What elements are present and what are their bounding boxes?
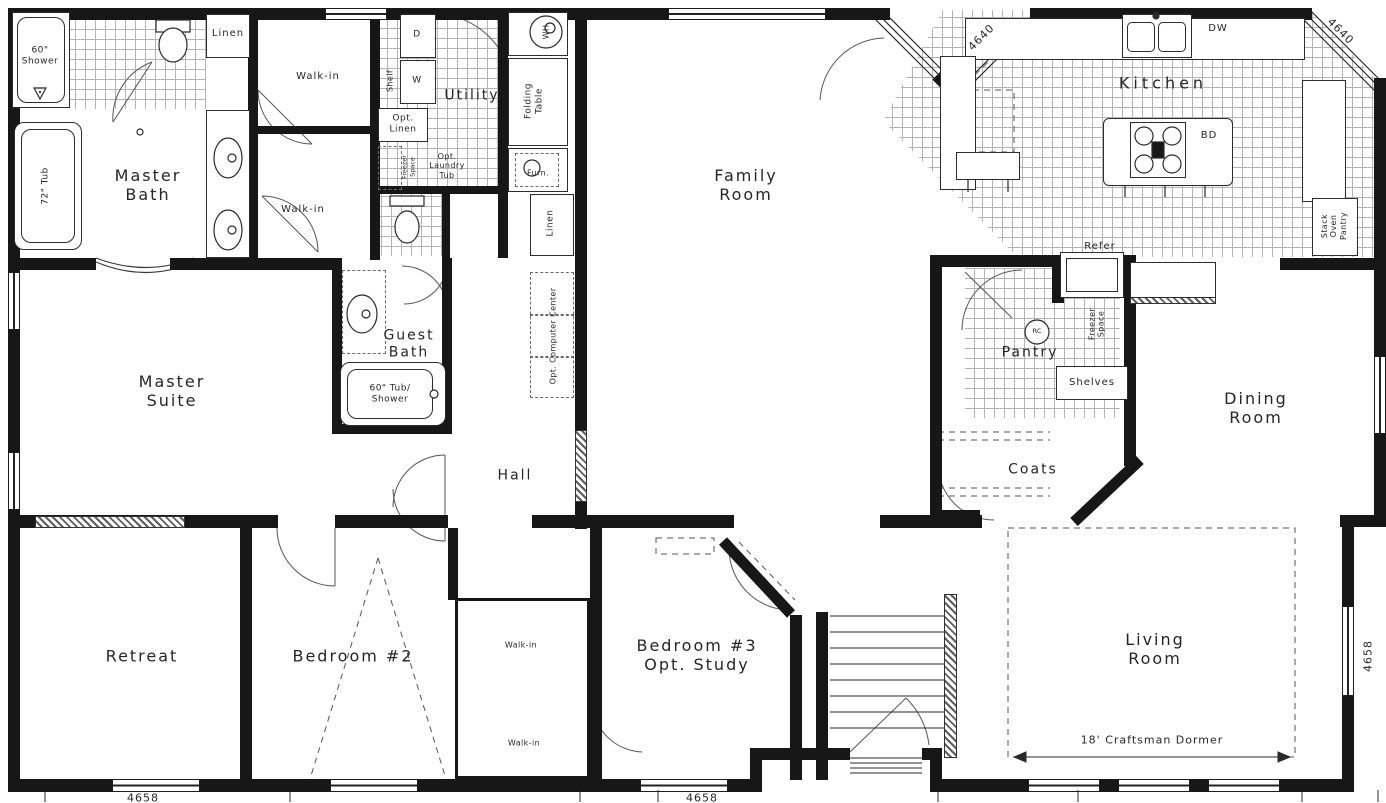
fixture-label-pantry-rc: RC bbox=[1033, 328, 1042, 336]
closet-label-freezer-space-pantry: Freezer Space bbox=[1088, 308, 1107, 340]
dimension-4658-right: 4658 bbox=[1363, 640, 1376, 672]
fixture-label-refrigerator: Refer bbox=[1084, 241, 1115, 253]
dimension-4658-bottom-left: 4658 bbox=[127, 793, 159, 803]
closet-label-opt-computer-center: Opt. Computer Center bbox=[548, 288, 557, 385]
closet-label-freezer-space-utility: Freezer Space bbox=[401, 155, 416, 179]
closet-label-linen-top: Linen bbox=[212, 28, 244, 40]
room-label-utility: Utility bbox=[444, 88, 499, 105]
room-label-coats: Coats bbox=[1008, 462, 1058, 479]
dimension-4658-bottom-center: 4658 bbox=[686, 793, 718, 803]
closet-label-stack-oven-pantry: Stack Oven Pantry bbox=[1320, 212, 1348, 240]
fixture-label-opt-laundry-tub: Opt. Laundry Tub bbox=[429, 152, 464, 180]
fixture-label-tub-72: 72" Tub bbox=[41, 167, 52, 205]
room-label-master-suite: Master Suite bbox=[139, 373, 206, 411]
room-label-bedroom-3: Bedroom #3 Opt. Study bbox=[636, 637, 757, 675]
fixture-label-washer: W bbox=[412, 76, 421, 87]
fixture-label-water-heater: WH bbox=[541, 25, 550, 40]
fixture-label-furnace: Furn. bbox=[527, 168, 549, 177]
closet-label-walkin-bed3-1: Walk-in bbox=[505, 640, 537, 649]
fixture-label-dryer: D bbox=[413, 30, 420, 41]
closet-label-shelf: Shelf bbox=[385, 70, 394, 92]
room-label-guest-bath: Guest Bath bbox=[383, 327, 434, 360]
closet-label-folding-table: Folding Table bbox=[523, 83, 544, 119]
room-label-kitchen: Kitchen bbox=[1119, 75, 1207, 94]
room-label-dining-room: Dining Room bbox=[1224, 390, 1288, 428]
closet-label-walkin-bed3-2: Walk-in bbox=[508, 738, 540, 747]
room-label-retreat: Retreat bbox=[106, 648, 179, 667]
room-label-master-bath: Master Bath bbox=[115, 167, 182, 205]
fixture-label-dishwasher: DW bbox=[1208, 23, 1228, 35]
room-label-hall: Hall bbox=[498, 468, 533, 485]
fixture-label-shower-60: 60" Shower bbox=[22, 45, 59, 66]
closet-label-walkin-1: Walk-in bbox=[296, 71, 340, 83]
closet-label-walkin-2: Walk-in bbox=[281, 204, 325, 216]
room-label-family-room: Family Room bbox=[714, 167, 777, 205]
annotation-craftsman-dormer: 18' Craftsman Dormer bbox=[1081, 735, 1224, 748]
closet-label-opt-linen: Opt. Linen bbox=[390, 113, 417, 134]
room-label-living-room: Living Room bbox=[1125, 631, 1185, 669]
fixture-label-island-bd: BD bbox=[1201, 130, 1218, 142]
closet-label-linen-hall: Linen bbox=[546, 210, 557, 237]
room-label-pantry: Pantry bbox=[1002, 345, 1059, 362]
room-label-bedroom-2: Bedroom #2 bbox=[292, 648, 413, 667]
floor-plan: (function(){ const walls=[ [8,8,882,12],… bbox=[0, 0, 1386, 803]
fixture-label-tub-shower-60: 60" Tub/ Shower bbox=[369, 383, 410, 404]
closet-label-shelves: Shelves bbox=[1069, 377, 1115, 389]
fixture-glyphs bbox=[0, 0, 1386, 803]
